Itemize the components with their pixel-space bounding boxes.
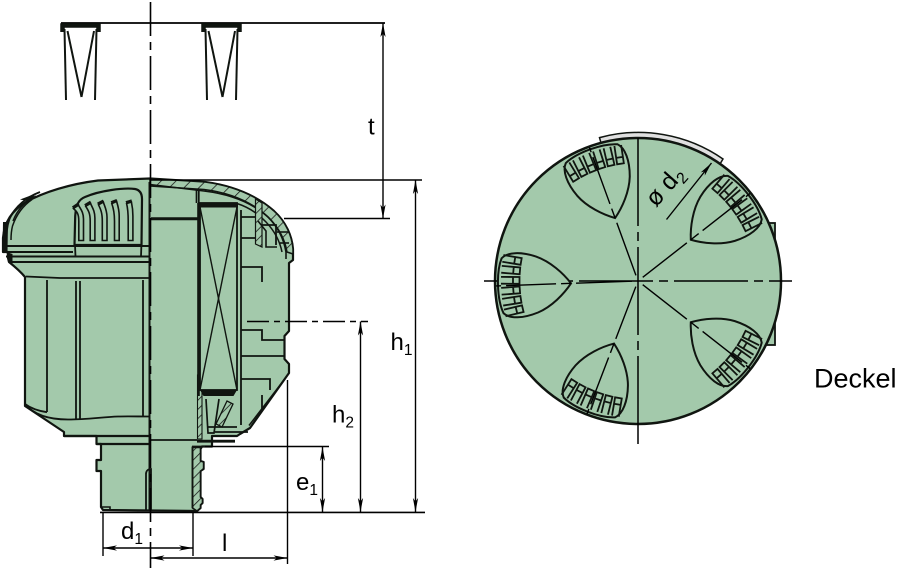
svg-text:l: l [222,530,227,557]
svg-text:t: t [368,114,375,141]
svg-text:Deckel: Deckel [814,364,897,394]
